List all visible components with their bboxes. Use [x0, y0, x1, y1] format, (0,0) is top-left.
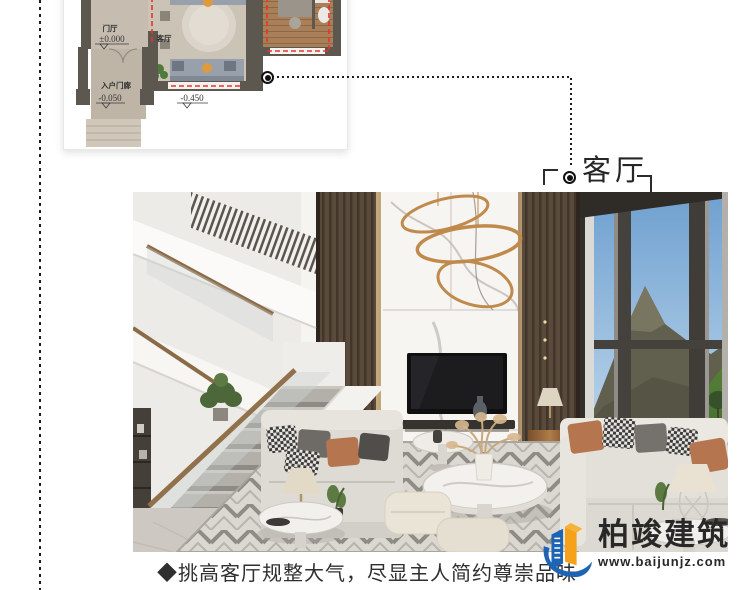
callout-dot — [563, 171, 576, 184]
plan-level-porch: -0.050 — [98, 93, 122, 103]
plan-level-foyer: ±0.000 — [99, 34, 125, 44]
callout-bracket-left — [543, 169, 558, 185]
living-room-scene — [133, 192, 728, 552]
logo-name: 柏竣建筑 — [598, 518, 730, 553]
floor-plan-card: 门厅 ±0.000 客厅 入户门廊 -0.050 -0.450 — [63, 0, 348, 150]
plan-anchor-dot — [261, 71, 274, 84]
wall-cabinet — [133, 408, 151, 512]
plan-label-living: 客厅 — [156, 33, 172, 43]
page: 门厅 ±0.000 客厅 入户门廊 -0.050 -0.450 客厅 — [0, 0, 750, 590]
plan-label-foyer: 门厅 — [103, 23, 118, 33]
logo-website: www.baijunjz.com — [598, 554, 730, 569]
living-room-photo — [133, 192, 728, 552]
callout-connector-horizontal — [272, 76, 571, 78]
callout-bracket-right — [637, 175, 652, 192]
callout-connector-vertical — [570, 78, 572, 168]
brand-logo: 柏竣建筑 www.baijunjz.com — [536, 518, 730, 580]
plan-label-porch: 入户门廊 — [100, 80, 131, 90]
plan-sofa-bottom — [170, 59, 244, 81]
floor-plan: 门厅 ±0.000 客厅 入户门廊 -0.050 -0.450 — [64, 0, 347, 149]
caption: ◆挑高客厅规整大气，尽显主人简约尊崇品味 — [157, 557, 577, 586]
logo-icon — [536, 518, 594, 580]
plan-level-living: -0.450 — [180, 93, 204, 103]
page-left-dotted-border — [39, 0, 41, 590]
